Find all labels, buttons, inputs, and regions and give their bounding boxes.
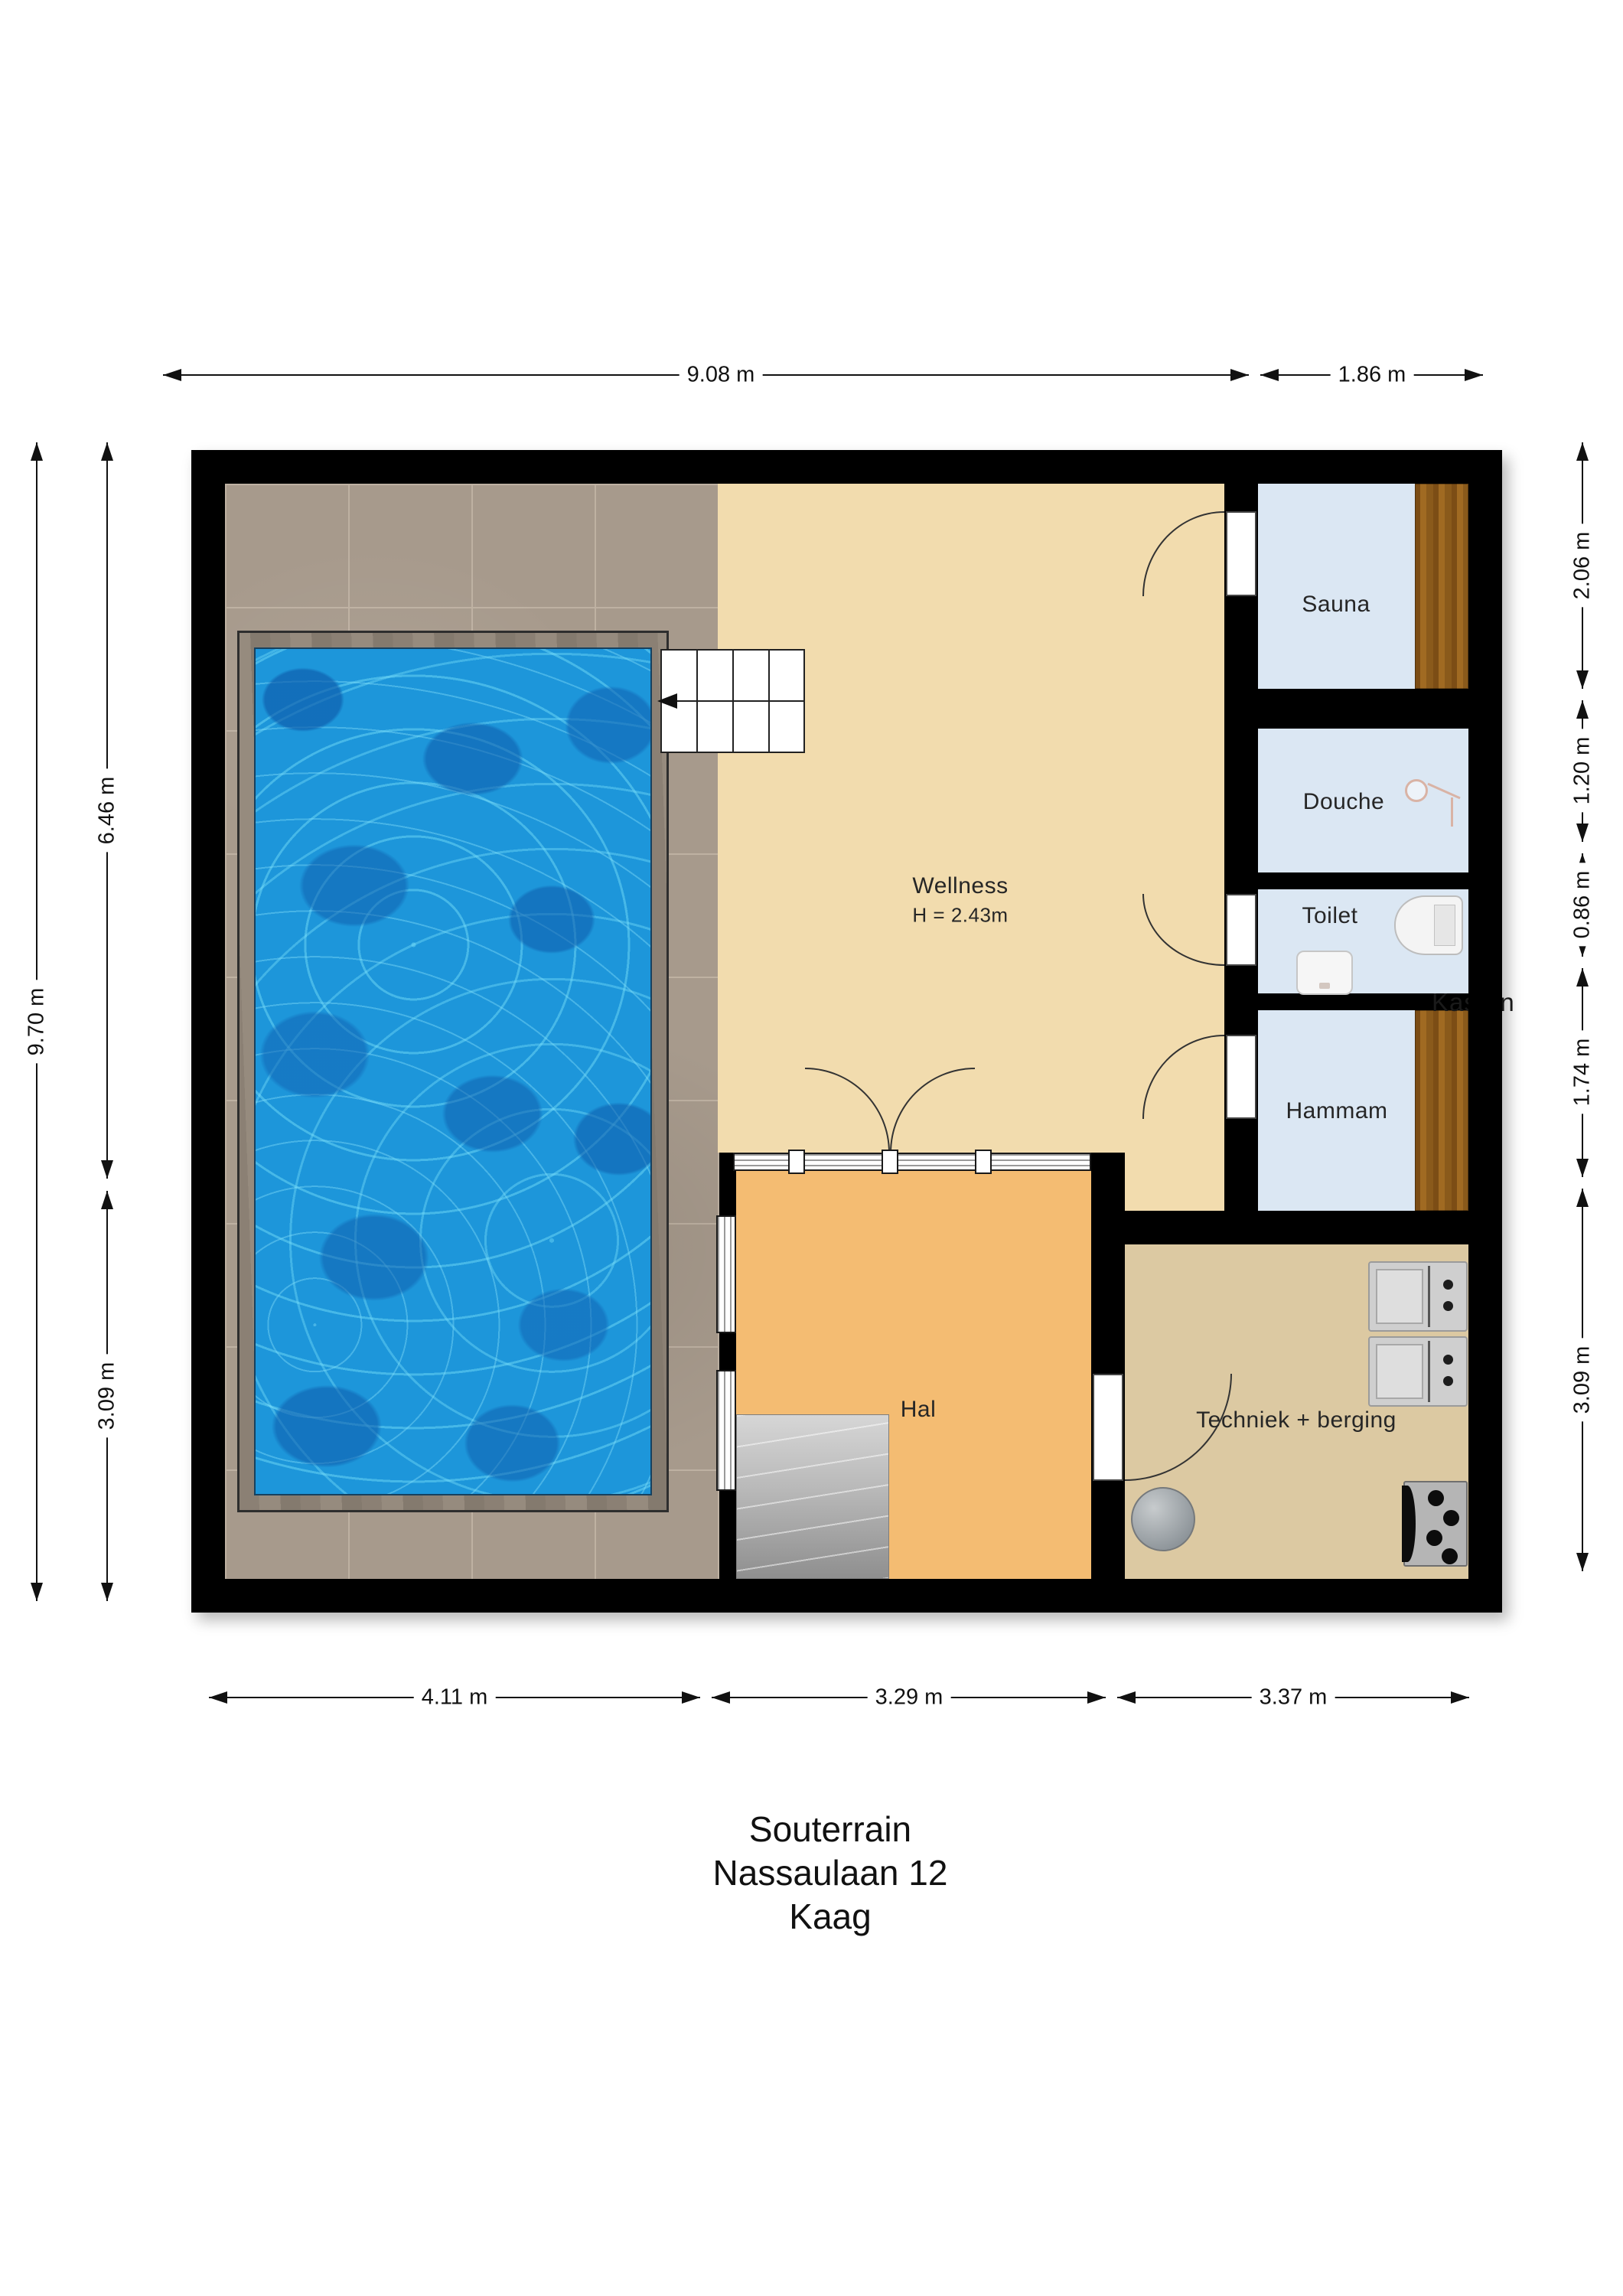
sauna-label: Sauna [1302,592,1370,618]
dim-arrow [1087,1691,1106,1704]
door-post [788,1150,805,1174]
dim-arrow [1576,823,1589,842]
title-city: Kaag [713,1895,948,1939]
dim-arrow [209,1691,227,1704]
dim-arrow [101,1191,113,1209]
heater-icon [1403,1481,1468,1567]
boiler-icon [1131,1487,1195,1551]
hal-label: Hal [901,1397,937,1423]
dim-arrow [31,442,43,461]
plan-title-block: Souterrain Nassaulaan 12 Kaag [713,1808,948,1939]
dim-right-3: 0.86 m [1570,863,1595,947]
dim-arrow [1576,670,1589,689]
door-post [882,1150,898,1174]
dim-arrow [31,1583,43,1601]
hammam-label: Hammam [1286,1098,1387,1124]
dim-left-1: 9.70 m [24,980,50,1064]
swimming-pool [254,647,652,1495]
sauna-door [1226,511,1256,596]
shower-pipe [1451,797,1453,827]
sauna-bench-wood [1415,484,1468,689]
dim-arrow [1576,700,1589,719]
douche-label: Douche [1303,789,1384,815]
toilet-cistern [1296,951,1353,995]
stairs-up-icon [660,649,805,753]
floorplan-page: Wellness H = 2.43m Sauna Douche Toilet H… [0,0,1623,2296]
dim-arrow [712,1691,730,1704]
door-post [975,1150,992,1174]
dim-left-3: 3.09 m [95,1355,120,1438]
dim-arrow [1451,1691,1469,1704]
dim-right-1: 2.06 m [1570,524,1595,608]
dim-arrow [1576,1159,1589,1177]
dim-arrow [1117,1691,1136,1704]
wellness-label: Wellness [912,873,1008,899]
hal-staircase [736,1414,889,1579]
hal-wellness-glass-partition [733,1153,1091,1171]
dim-right-2: 1.20 m [1570,729,1595,813]
hammam-door [1226,1035,1256,1119]
wall-over-kasten-label [1468,968,1502,1029]
dryer-icon [1368,1336,1468,1407]
dim-right-4: 1.74 m [1570,1031,1595,1114]
dim-arrow [1576,968,1589,987]
hal-pool-window-2 [716,1370,736,1491]
toilet-icon [1394,895,1463,955]
dim-bottom-2: 3.29 m [868,1685,951,1711]
dim-arrow [1576,1553,1589,1571]
dim-arrow [1230,369,1249,381]
dim-arrow [1576,442,1589,461]
dim-arrow [101,1583,113,1601]
dim-arrow [1260,369,1279,381]
dim-arrow [163,369,181,381]
title-street: Nassaulaan 12 [713,1851,948,1895]
toilet-door [1226,894,1256,966]
dim-arrow [101,442,113,461]
dim-arrow [682,1691,700,1704]
stairs-direction-arrow [657,693,677,709]
wellness-height-note: H = 2.43m [912,904,1008,928]
washer-icon [1368,1261,1468,1332]
dim-right-5: 3.09 m [1570,1339,1595,1422]
dim-top-1: 9.08 m [680,363,763,388]
techniek-door [1093,1374,1123,1481]
dim-arrow [1576,1189,1589,1207]
techniek-label: Techniek + berging [1196,1407,1396,1433]
wellness-floor-strip [1125,1153,1224,1211]
hal-pool-window-1 [716,1215,736,1333]
dim-arrow [101,1160,113,1179]
title-floor: Souterrain [713,1808,948,1851]
hammam-bench-wood [1415,1010,1468,1211]
shower-icon [1405,779,1428,802]
dim-top-2: 1.86 m [1331,363,1414,388]
dim-arrow [1465,369,1483,381]
dim-bottom-1: 4.11 m [414,1685,496,1711]
dim-left-2: 6.46 m [95,769,120,853]
dim-bottom-3: 3.37 m [1252,1685,1335,1711]
toilet-label: Toilet [1302,903,1357,929]
